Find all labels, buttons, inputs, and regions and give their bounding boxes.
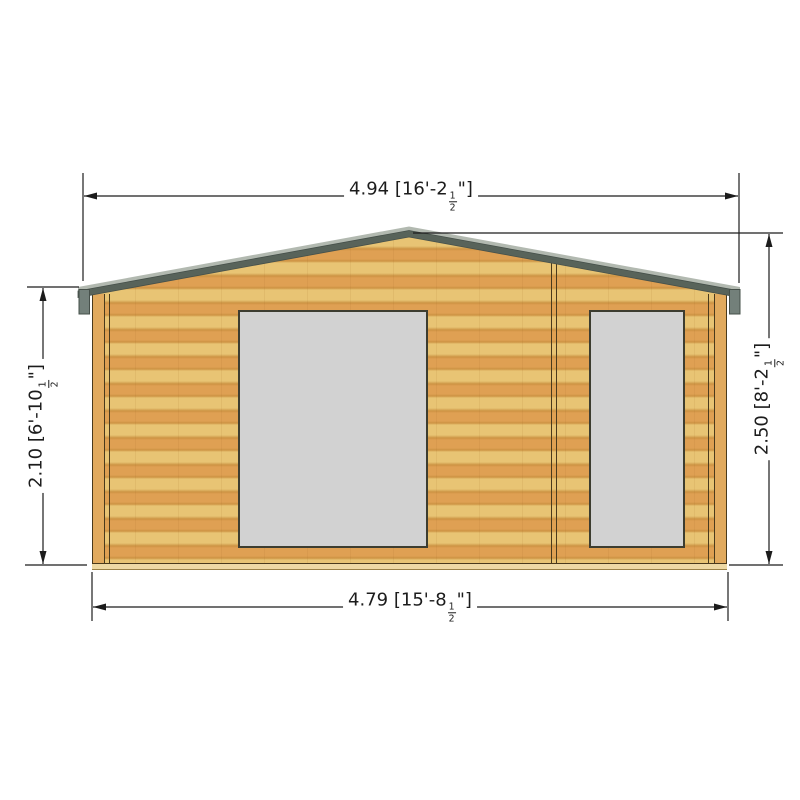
top-dim-arrow-left — [84, 193, 97, 200]
top-dimension-fraction: 12 — [449, 191, 457, 213]
left-dimension-text: 2.10 [6'-10 — [25, 389, 46, 488]
left-dim-arrow-bottom — [40, 551, 47, 564]
roof-and-dimensions-overlay — [0, 0, 800, 800]
bottom-dim-arrow-right — [714, 604, 727, 611]
bottom-dimension-label: 4.79 [15'-812"] — [343, 590, 477, 623]
top-dimension-text: 4.94 [16'-2 — [349, 178, 448, 199]
left-fascia-board — [79, 290, 90, 315]
bottom-dim-arrow-left — [93, 604, 106, 611]
left-dimension-fraction: 12 — [38, 380, 60, 388]
right-dim-arrow-top — [766, 234, 773, 247]
right-dimension-label: 2.50 [8'-212"] — [752, 338, 785, 460]
elevation-drawing: 4.94 [16'-212"] 4.79 [15'-812"] 2.10 [6'… — [0, 0, 800, 800]
right-dim-arrow-bottom — [766, 551, 773, 564]
bottom-dimension-fraction: 12 — [448, 602, 456, 624]
roof-band — [78, 231, 740, 298]
top-dim-arrow-right — [725, 193, 738, 200]
bottom-dimension-text: 4.79 [15'-8 — [348, 589, 447, 610]
left-dimension-label: 2.10 [6'-1012"] — [26, 359, 59, 493]
right-dimension-text: 2.50 [8'-2 — [751, 368, 772, 455]
top-dimension-label: 4.94 [16'-212"] — [344, 179, 478, 212]
right-dimension-fraction: 12 — [764, 359, 786, 367]
right-fascia-board — [730, 290, 741, 315]
left-dim-arrow-top — [40, 288, 47, 301]
